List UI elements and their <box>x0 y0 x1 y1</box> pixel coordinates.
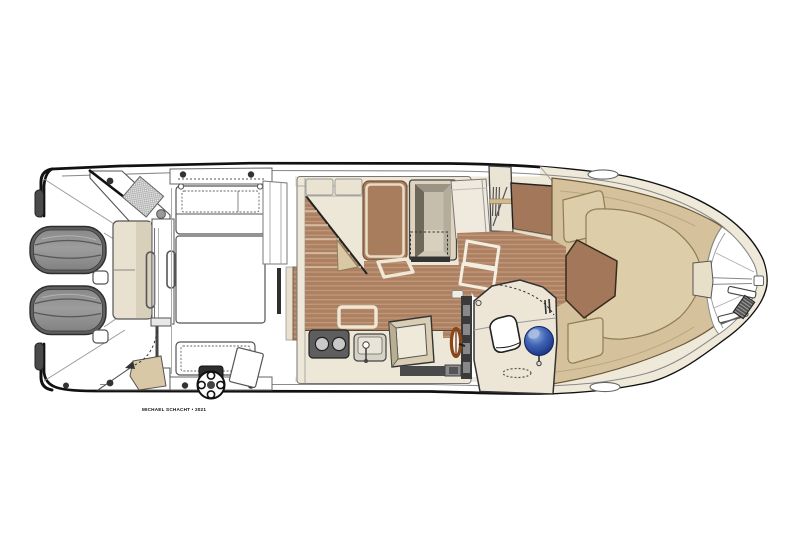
svg-text:MICHAEL SCHACHT • 2021: MICHAEL SCHACHT • 2021 <box>142 407 206 412</box>
